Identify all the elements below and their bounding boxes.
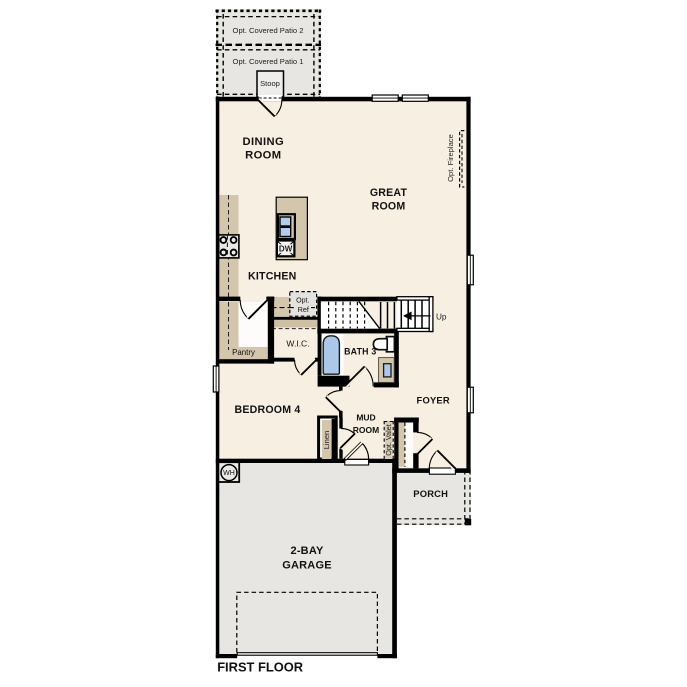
svg-text:DININGROOM: DININGROOM	[243, 136, 285, 162]
svg-text:PORCH: PORCH	[413, 488, 448, 499]
svg-text:Up: Up	[436, 312, 447, 321]
svg-text:W.I.C.: W.I.C.	[286, 339, 309, 349]
svg-text:KITCHEN: KITCHEN	[248, 271, 296, 283]
svg-text:Ref: Ref	[298, 306, 309, 314]
svg-text:Pantry: Pantry	[232, 348, 255, 357]
svg-text:Linen: Linen	[322, 431, 331, 450]
svg-text:WH: WH	[223, 470, 235, 477]
svg-text:FOYER: FOYER	[417, 394, 450, 405]
svg-text:Stoop: Stoop	[260, 79, 280, 88]
svg-text:GREATROOM: GREATROOM	[370, 187, 408, 213]
svg-text:Opt.: Opt.	[296, 297, 309, 305]
svg-text:Opt. Covered Patio 1: Opt. Covered Patio 1	[233, 57, 304, 66]
svg-text:BATH 3: BATH 3	[344, 347, 376, 357]
svg-text:Opt. Fireplace: Opt. Fireplace	[446, 134, 455, 182]
svg-text:Opt. Valet: Opt. Valet	[384, 424, 393, 455]
svg-text:FIRST FLOOR: FIRST FLOOR	[217, 659, 304, 674]
svg-text:DW: DW	[279, 245, 293, 254]
svg-text:BEDROOM 4: BEDROOM 4	[235, 404, 301, 416]
svg-text:Opt. Covered Patio 2: Opt. Covered Patio 2	[233, 26, 304, 35]
